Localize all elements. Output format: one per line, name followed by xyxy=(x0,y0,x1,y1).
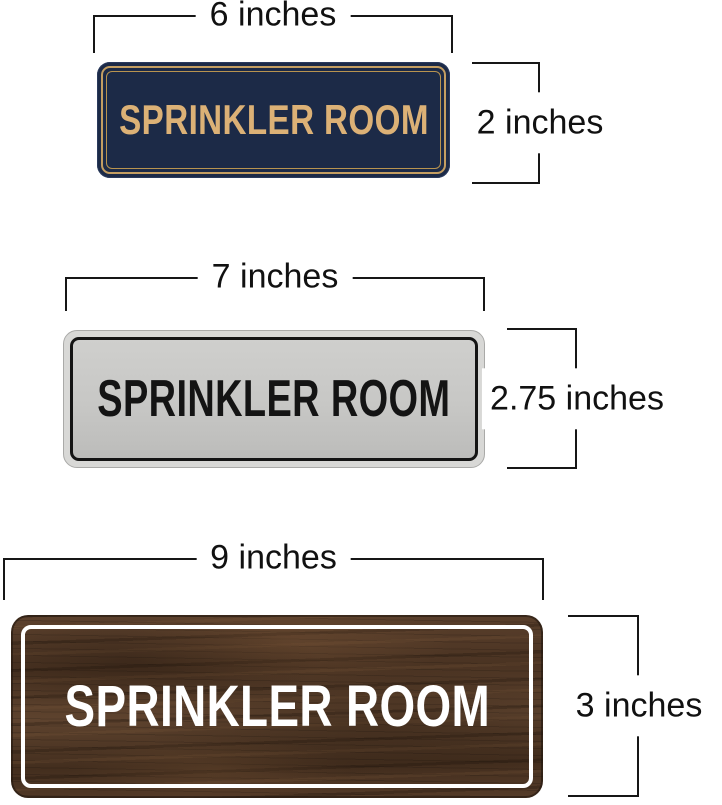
height-dimension-label-navy: 2 inches xyxy=(469,92,612,153)
width-dimension-bracket-silver: 7 inches xyxy=(65,277,485,311)
sign-wood-text: SPRINKLER ROOM xyxy=(64,673,490,740)
height-dimension-label-wood: 3 inches xyxy=(568,675,711,736)
height-dimension-bracket-silver: 2.75 inches xyxy=(507,328,577,469)
sign-silver-text: SPRINKLER ROOM xyxy=(97,369,450,429)
width-dimension-bracket-navy: 6 inches xyxy=(93,15,453,53)
sign-navy-text: SPRINKLER ROOM xyxy=(119,96,429,144)
height-dimension-bracket-wood: 3 inches xyxy=(568,615,639,797)
width-dimension-bracket-wood: 9 inches xyxy=(3,558,544,600)
sign-silver: SPRINKLER ROOM xyxy=(63,330,485,468)
height-dimension-bracket-navy: 2 inches xyxy=(472,62,540,184)
sign-navy: SPRINKLER ROOM xyxy=(97,62,450,178)
sign-navy-inner-pinstripe: SPRINKLER ROOM xyxy=(106,71,441,169)
sign-navy-outer-pinstripe: SPRINKLER ROOM xyxy=(101,66,446,174)
sign-silver-inner-panel: SPRINKLER ROOM xyxy=(70,337,478,461)
height-dimension-label-silver: 2.75 inches xyxy=(482,368,672,429)
sign-wood: SPRINKLER ROOM xyxy=(11,615,543,798)
width-dimension-label-wood: 9 inches xyxy=(196,539,351,576)
width-dimension-label-silver: 7 inches xyxy=(198,258,353,295)
sign-size-comparison-figure: 6 inches SPRINKLER ROOM 2 inches 7 inche… xyxy=(0,0,722,805)
width-dimension-label-navy: 6 inches xyxy=(196,0,351,34)
